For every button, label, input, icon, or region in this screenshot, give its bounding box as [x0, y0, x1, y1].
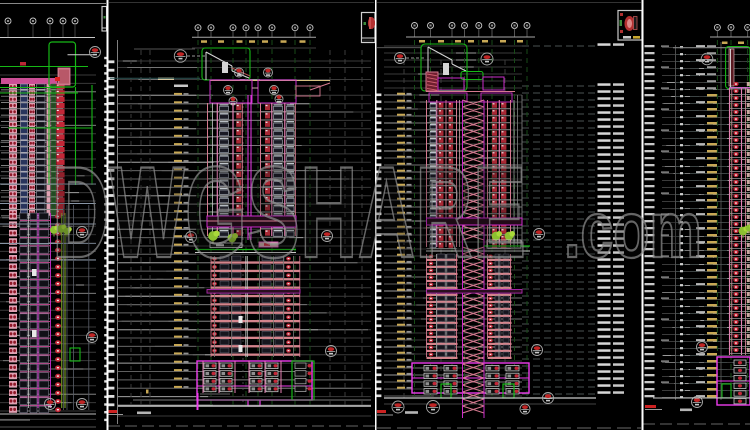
- svg-text:DWGSHARE: DWGSHARE: [52, 139, 526, 285]
- svg-text:.com: .com: [564, 185, 702, 274]
